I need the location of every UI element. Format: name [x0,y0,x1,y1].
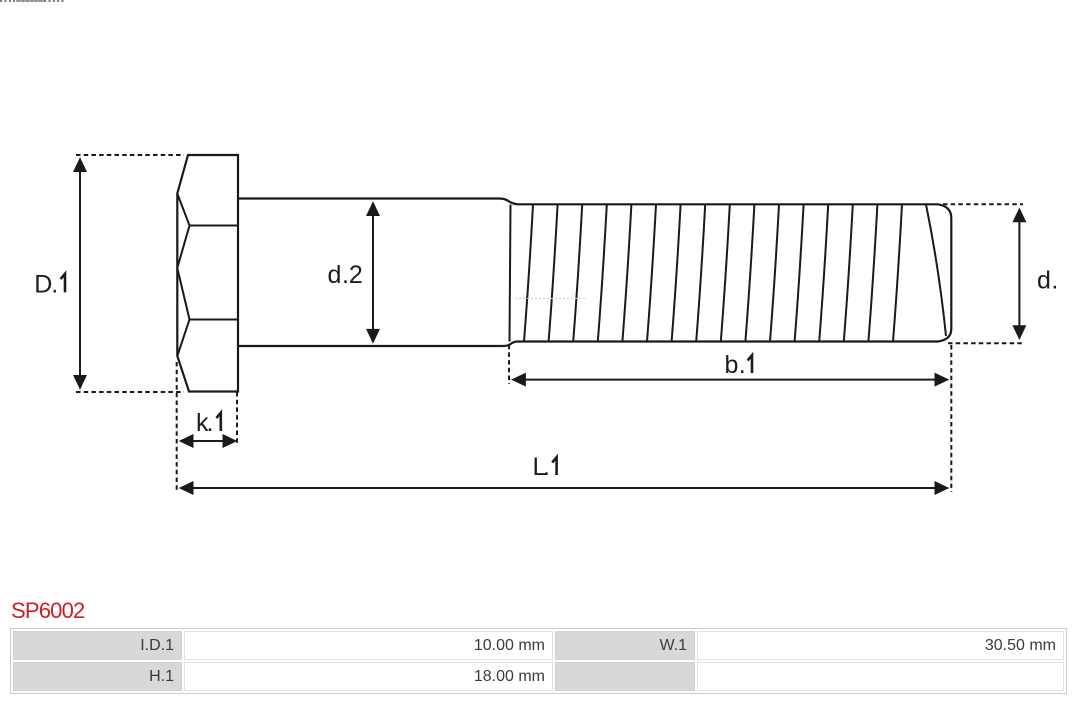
svg-text:.: . [51,271,58,299]
svg-text:b: b [724,351,738,379]
svg-text:.: . [739,351,746,379]
svg-text:d: d [328,261,342,289]
svg-text:.: . [543,453,550,481]
svg-text:2: 2 [349,261,363,289]
svg-text:.: . [207,409,214,437]
svg-text:d: d [1037,267,1051,295]
svg-text:D: D [34,271,52,299]
svg-text:.: . [1051,267,1058,295]
